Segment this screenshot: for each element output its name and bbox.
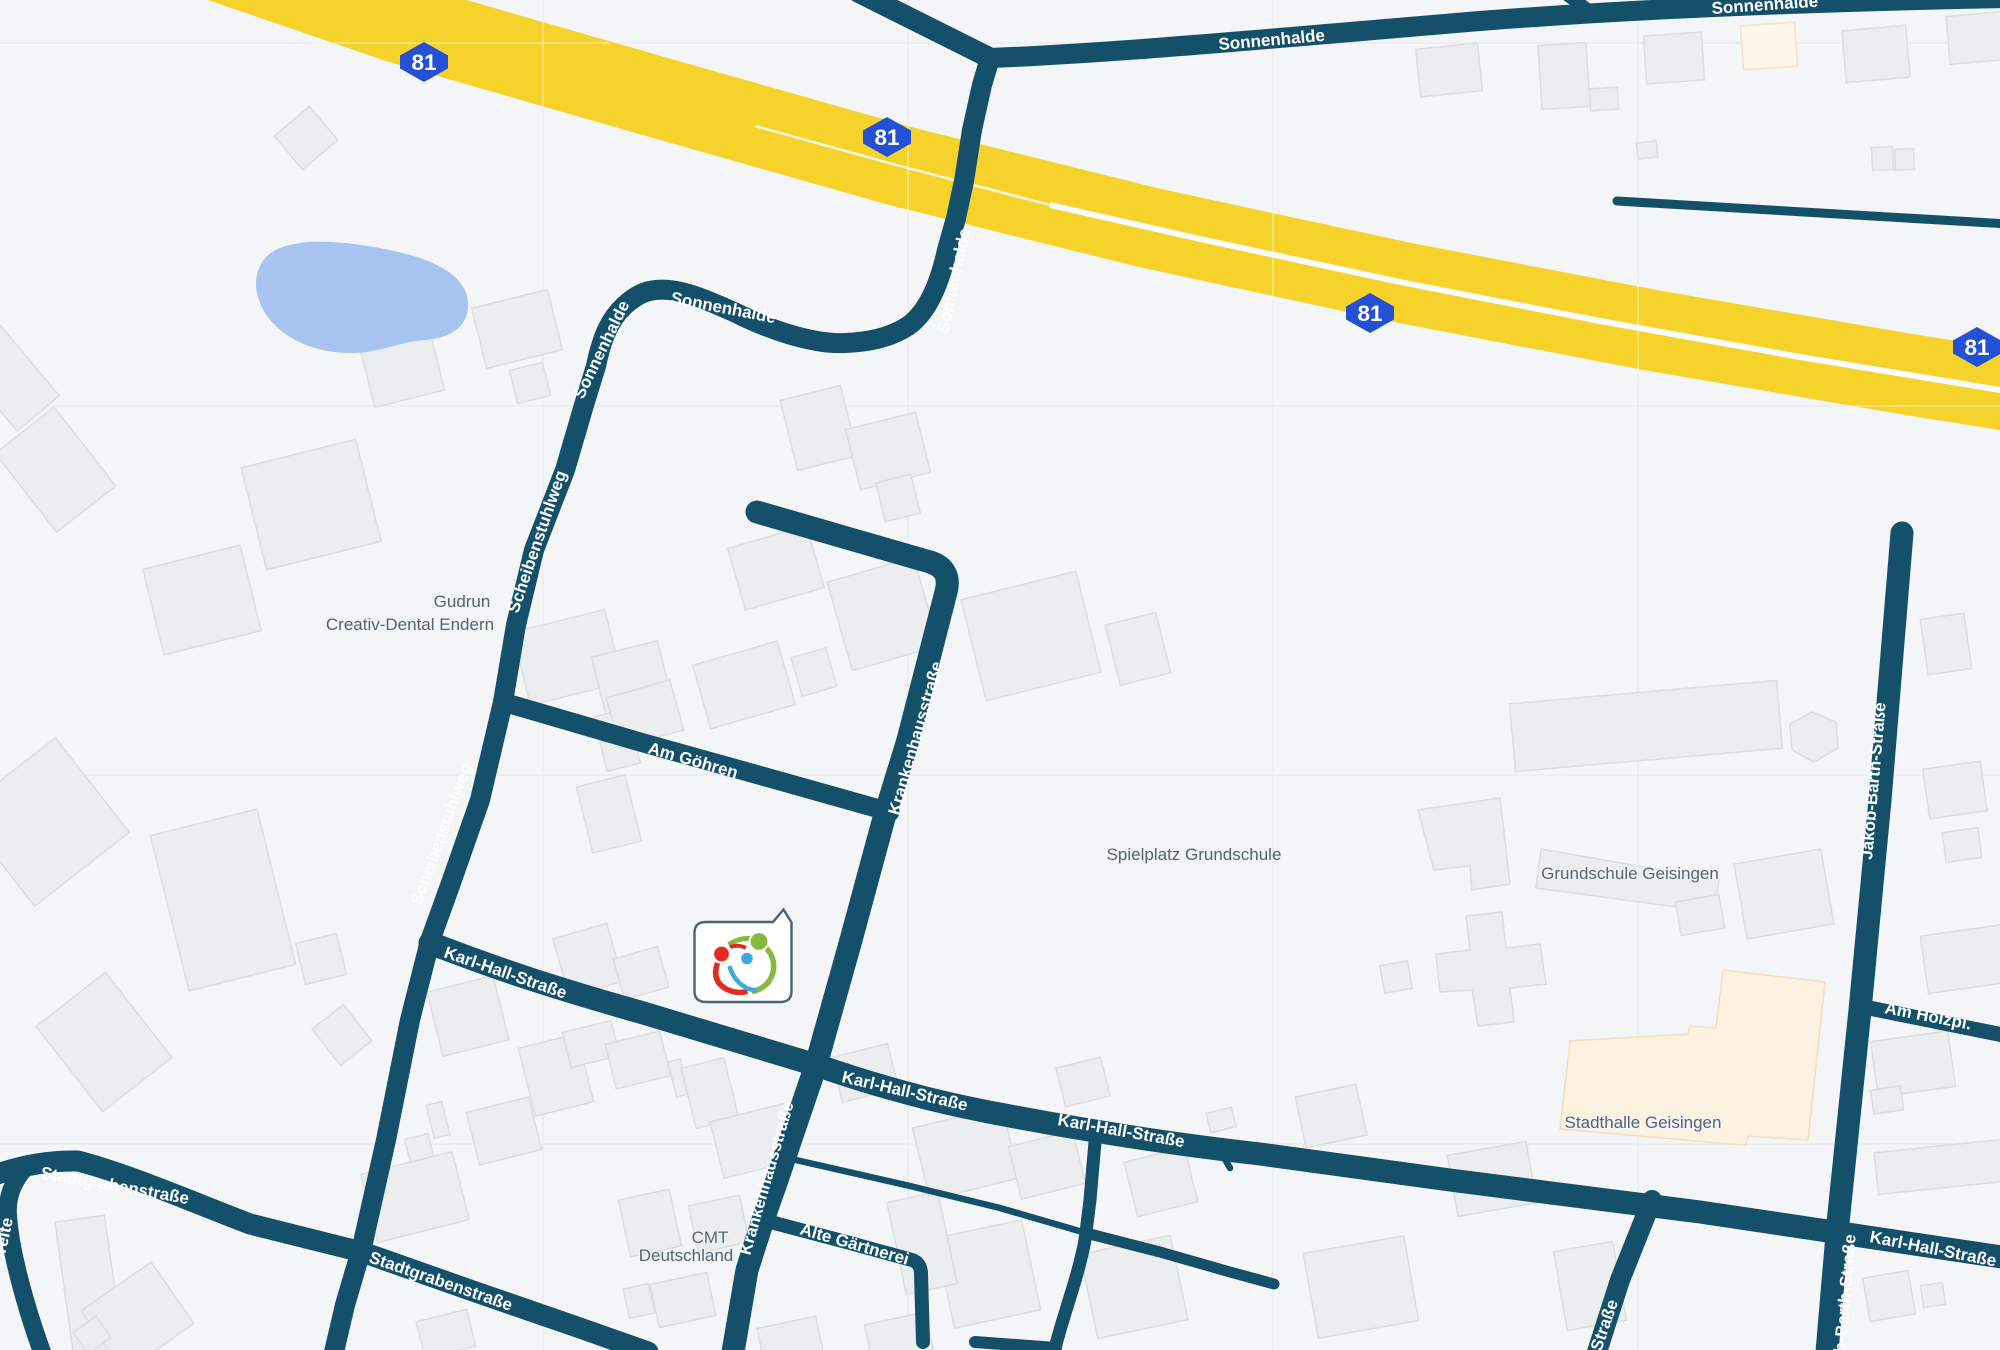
svg-text:81: 81 xyxy=(874,125,899,150)
svg-text:81: 81 xyxy=(1357,301,1382,326)
svg-text:81: 81 xyxy=(1964,335,1989,360)
svg-text:Creativ-Dental Endern: Creativ-Dental Endern xyxy=(326,615,494,634)
svg-text:Grundschule Geisingen: Grundschule Geisingen xyxy=(1541,864,1719,883)
svg-text:Gudrun: Gudrun xyxy=(434,592,491,611)
svg-text:Spielplatz Grundschule: Spielplatz Grundschule xyxy=(1107,845,1282,864)
svg-text:Deutschland: Deutschland xyxy=(639,1246,734,1265)
svg-text:Stadthalle Geisingen: Stadthalle Geisingen xyxy=(1565,1113,1722,1132)
svg-text:CMT: CMT xyxy=(692,1228,729,1247)
svg-text:81: 81 xyxy=(411,50,436,75)
